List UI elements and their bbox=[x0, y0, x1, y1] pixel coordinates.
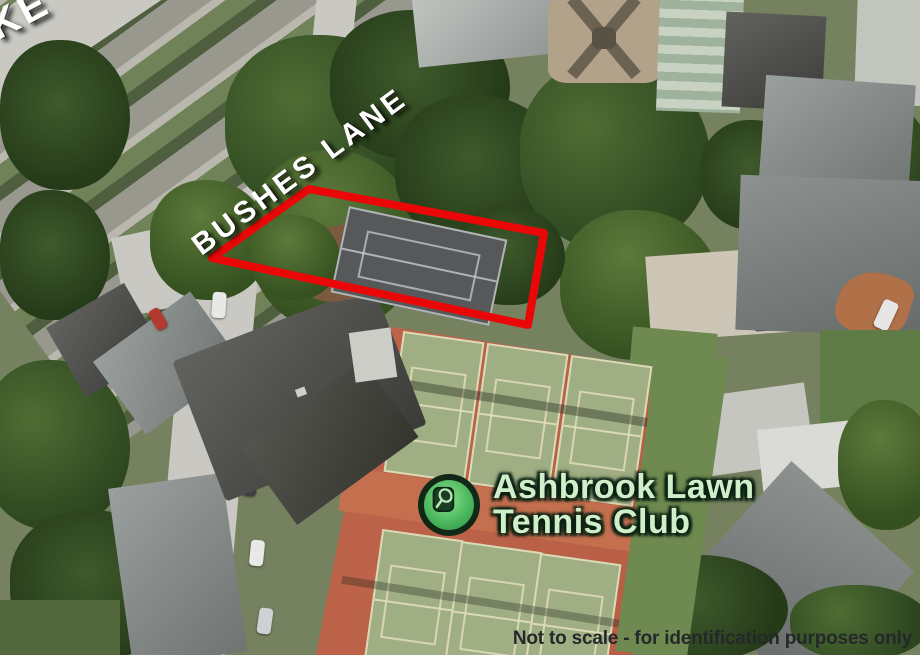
poi-label-ashbrook: Ashbrook Lawn Tennis Club bbox=[418, 470, 755, 540]
poi-name-line1: Ashbrook Lawn bbox=[493, 470, 755, 505]
tennis-racket-icon bbox=[418, 474, 480, 536]
disclaimer-text: Not to scale - for identification purpos… bbox=[513, 628, 912, 650]
poi-name: Ashbrook Lawn Tennis Club bbox=[493, 470, 755, 540]
boundary-overlay bbox=[0, 0, 920, 655]
satellite-map: KE BUSHES LANE Ashbrook Lawn Tennis Club… bbox=[0, 0, 920, 655]
poi-name-line2: Tennis Club bbox=[493, 505, 755, 540]
